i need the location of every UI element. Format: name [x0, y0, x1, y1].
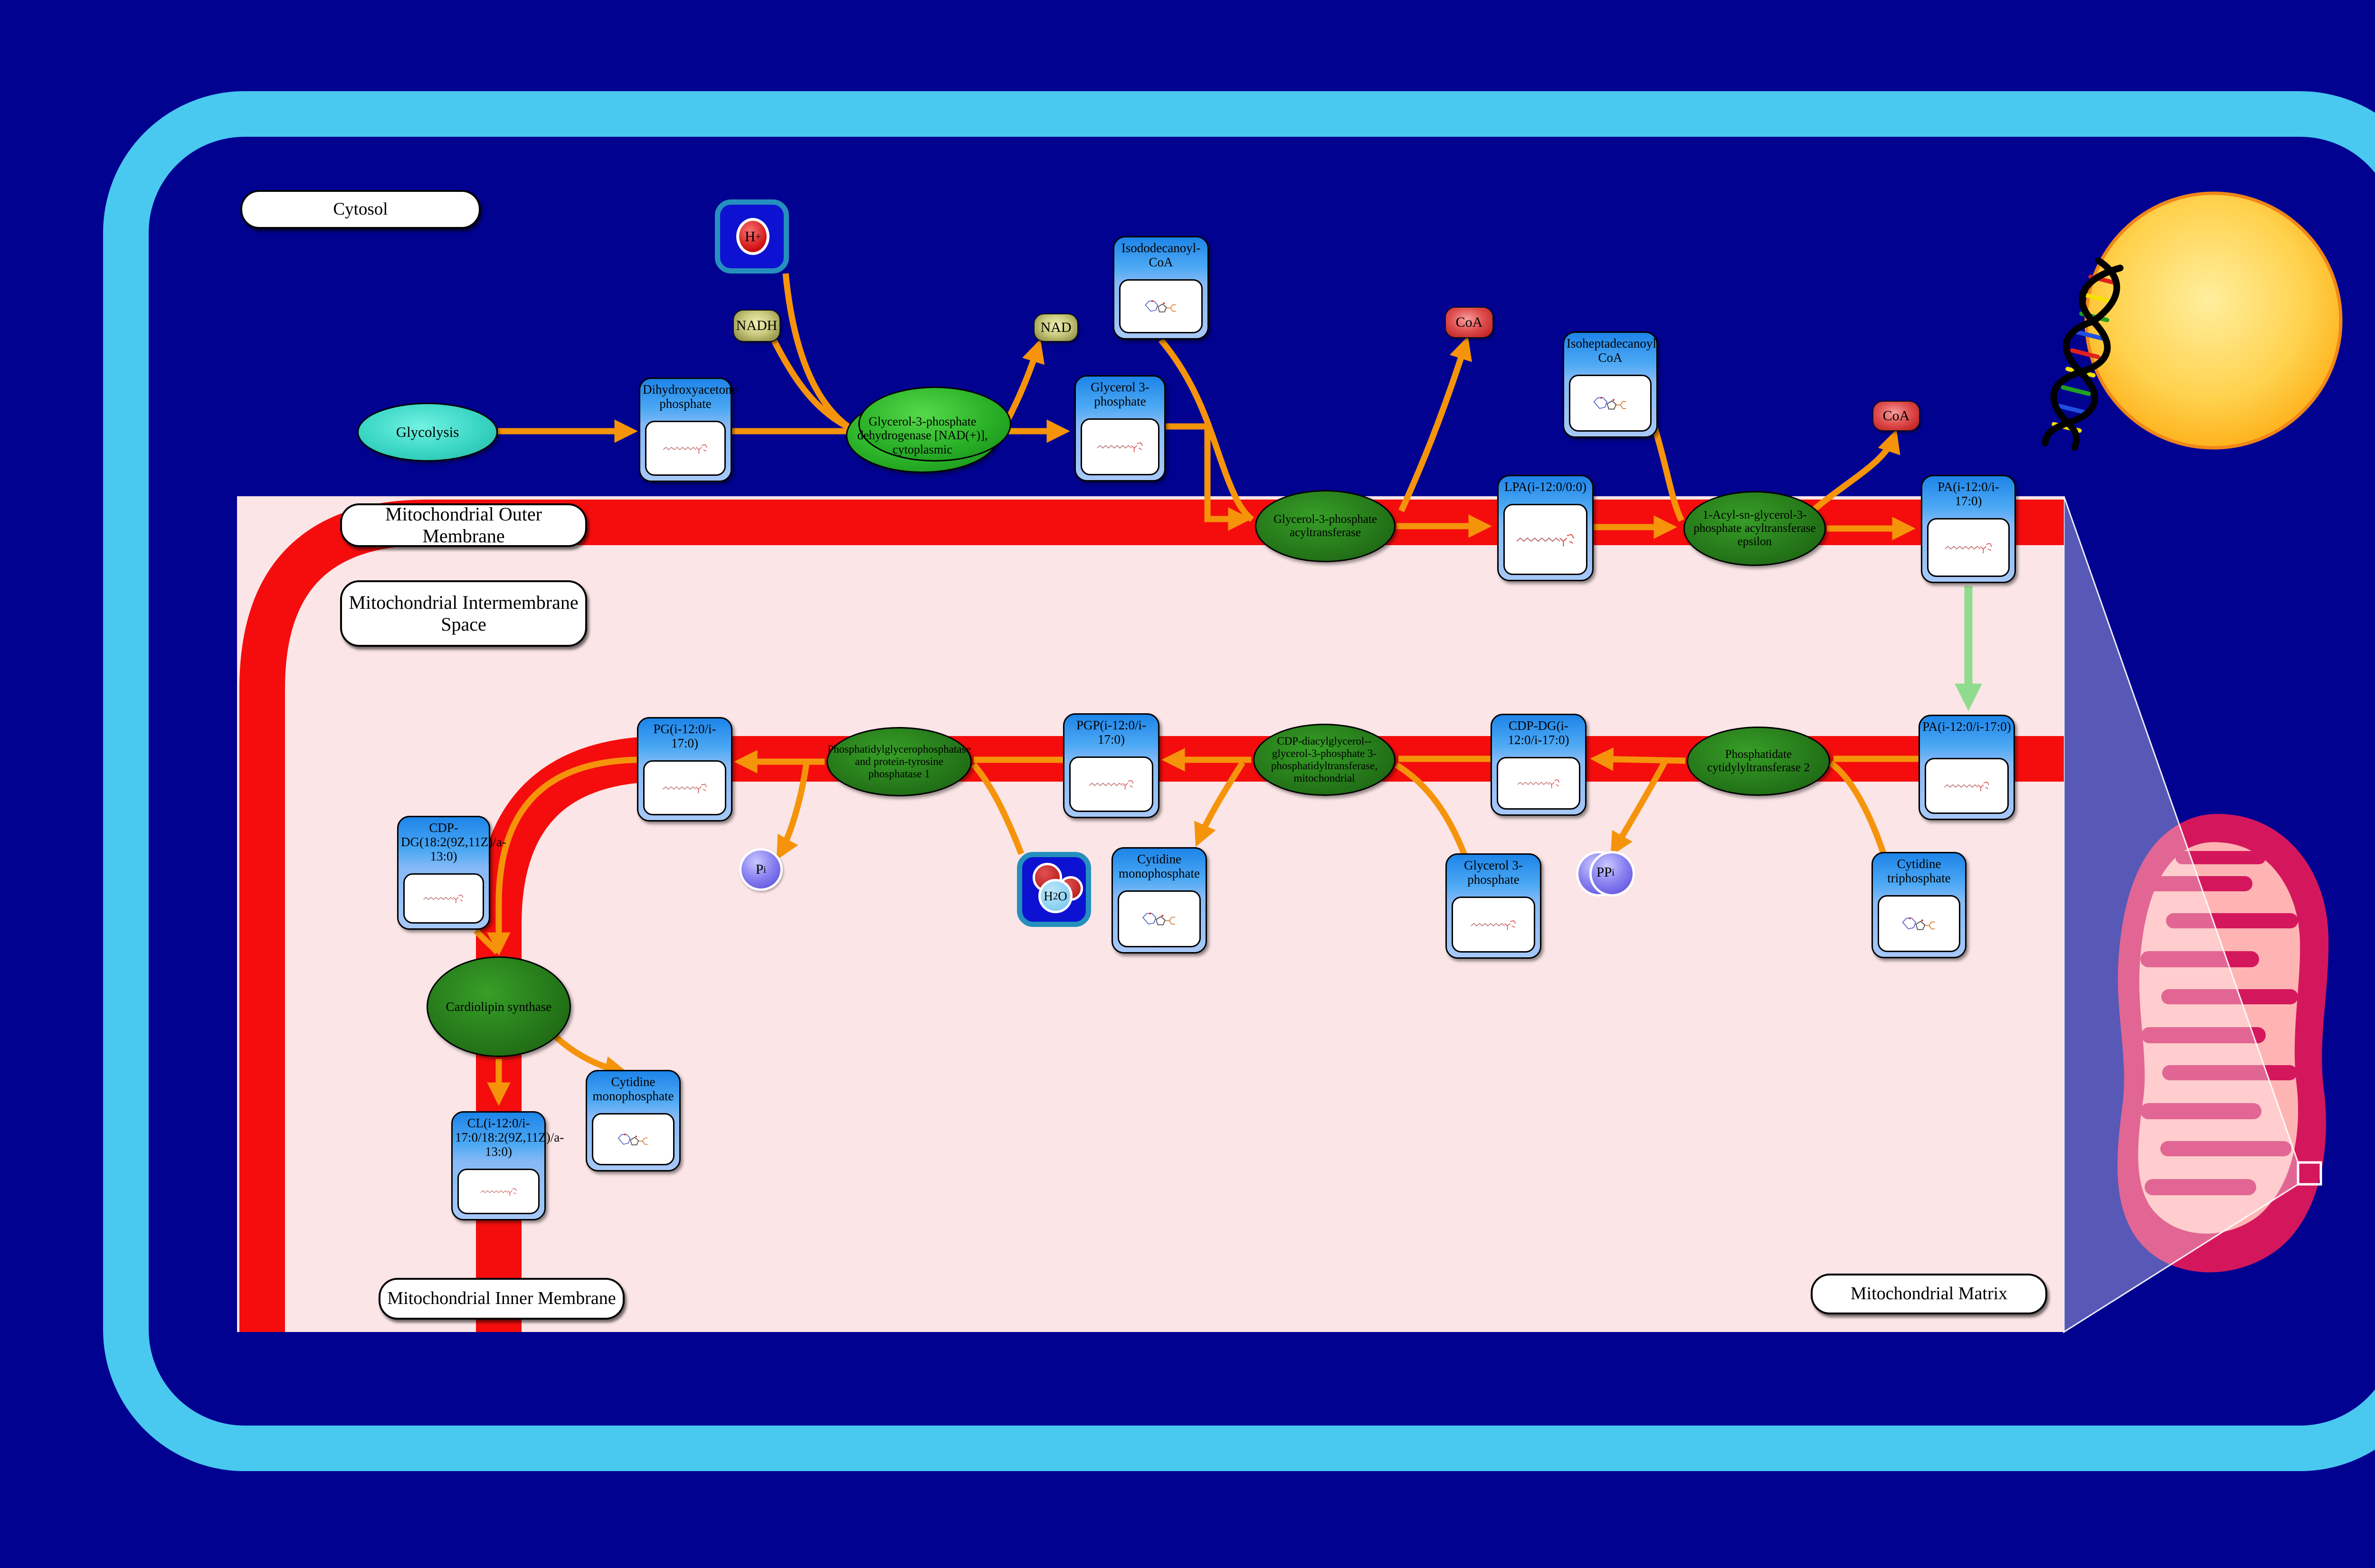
- metabolite-isoheptadecanoyl-coa[interactable]: Isoheptadecanoyl-CoA: [1563, 331, 1658, 438]
- metabolite-pgp[interactable]: PGP(i-12:0/i-17:0): [1063, 713, 1159, 818]
- structure-drawing: [1878, 895, 1960, 952]
- metabolite-pa-outer[interactable]: PA(i-12:0/i-17:0): [1921, 475, 2016, 583]
- compartment-label-inner-membrane: Mitochondrial Inner Membrane: [379, 1278, 625, 1320]
- enzyme-gpat[interactable]: Glycerol-3-phosphate acyltransferase: [1255, 490, 1396, 562]
- enzyme-gpd1[interactable]: Glycerol-3-phosphate dehydrogenase [NAD(…: [846, 398, 999, 473]
- diagram-background-layer: [0, 0, 2375, 1568]
- structure-drawing: [403, 873, 484, 924]
- small-molecule-nadh[interactable]: NADH: [733, 310, 780, 342]
- small-molecule-ppi[interactable]: PPi: [1576, 851, 1635, 894]
- structure-drawing: [645, 421, 726, 476]
- metabolite-cmp-bottom[interactable]: Cytidine monophosphate: [586, 1070, 681, 1171]
- structure-drawing: [1081, 418, 1159, 475]
- structure-drawing: [1069, 756, 1153, 812]
- structure-drawing: [592, 1113, 674, 1165]
- metabolite-pg[interactable]: PG(i-12:0/i-17:0): [637, 717, 732, 822]
- small-molecule-pi[interactable]: Pi: [739, 848, 783, 891]
- structure-drawing: [1927, 518, 2010, 577]
- metabolite-cardiolipin[interactable]: CL(i-12:0/i-17:0/18:2(9Z,11Z)/a-13:0): [451, 1111, 546, 1220]
- enzyme-pgs1[interactable]: CDP-diacylglycerol--glycerol-3-phosphate…: [1253, 724, 1396, 796]
- metabolite-pa-inner[interactable]: PA(i-12:0/i-17:0): [1919, 715, 2015, 820]
- metabolite-g3p-cytosol[interactable]: Glycerol 3-phosphate: [1074, 375, 1166, 482]
- water-molecule-icon: H2O: [1038, 879, 1073, 913]
- structure-drawing: [1497, 757, 1580, 810]
- structure-drawing: [1452, 897, 1535, 953]
- metabolite-cdp-dg[interactable]: CDP-DG(i-12:0/i-17:0): [1491, 714, 1586, 816]
- structure-drawing: [1569, 375, 1652, 432]
- metabolite-lpa[interactable]: LPA(i-12:0/0:0): [1497, 475, 1594, 581]
- metabolite-cmp-mid[interactable]: Cytidine monophosphate: [1111, 847, 1207, 954]
- small-molecule-h-plus[interactable]: H+: [715, 199, 789, 274]
- enzyme-agpat-epsilon[interactable]: 1-Acyl-sn-glycerol-3-phosphate acyltrans…: [1683, 491, 1826, 566]
- structure-drawing: [457, 1169, 540, 1214]
- metabolite-cdp-dg-linoleoyl[interactable]: CDP-DG(18:2(9Z,11Z)/a-13:0): [397, 816, 490, 930]
- small-molecule-coa-2[interactable]: CoA: [1872, 401, 1920, 431]
- enzyme-cardiolipin-synthase[interactable]: Cardiolipin synthase: [427, 956, 571, 1057]
- small-molecule-coa-1[interactable]: CoA: [1445, 307, 1493, 338]
- metabolite-g3p-matrix[interactable]: Glycerol 3-phosphate: [1445, 853, 1541, 959]
- metabolite-dhap[interactable]: Dihydroxyacetone phosphate: [639, 378, 732, 482]
- compartment-label-intermembrane-space: Mitochondrial Intermembrane Space: [340, 580, 587, 647]
- structure-drawing: [1119, 279, 1203, 333]
- compartment-label-outer-membrane: Mitochondrial Outer Membrane: [340, 503, 587, 547]
- pathway-diagram-canvas: Cytosol Mitochondrial Outer Membrane Mit…: [0, 0, 2375, 1568]
- metabolite-isododecanoyl-coa[interactable]: Isododecanoyl-CoA: [1113, 236, 1209, 340]
- pathway-node-glycolysis[interactable]: Glycolysis: [357, 403, 498, 462]
- structure-drawing: [1118, 890, 1201, 947]
- small-molecule-nad[interactable]: NAD: [1034, 313, 1078, 342]
- compartment-label-matrix: Mitochondrial Matrix: [1811, 1274, 2047, 1314]
- nucleus-illustration: [2042, 193, 2341, 452]
- small-molecule-h2o[interactable]: H2O: [1017, 852, 1091, 927]
- enzyme-cds2[interactable]: Phosphatidate cytidylyltransferase 2: [1687, 727, 1830, 796]
- metabolite-ctp[interactable]: Cytidine triphosphate: [1871, 852, 1966, 958]
- structure-drawing: [1503, 504, 1587, 575]
- structure-drawing: [1925, 758, 2009, 814]
- enzyme-ptpmt1[interactable]: Phosphatidylglycerophosphatase and prote…: [826, 727, 972, 796]
- compartment-label-cytosol: Cytosol: [240, 190, 481, 229]
- structure-drawing: [643, 760, 726, 815]
